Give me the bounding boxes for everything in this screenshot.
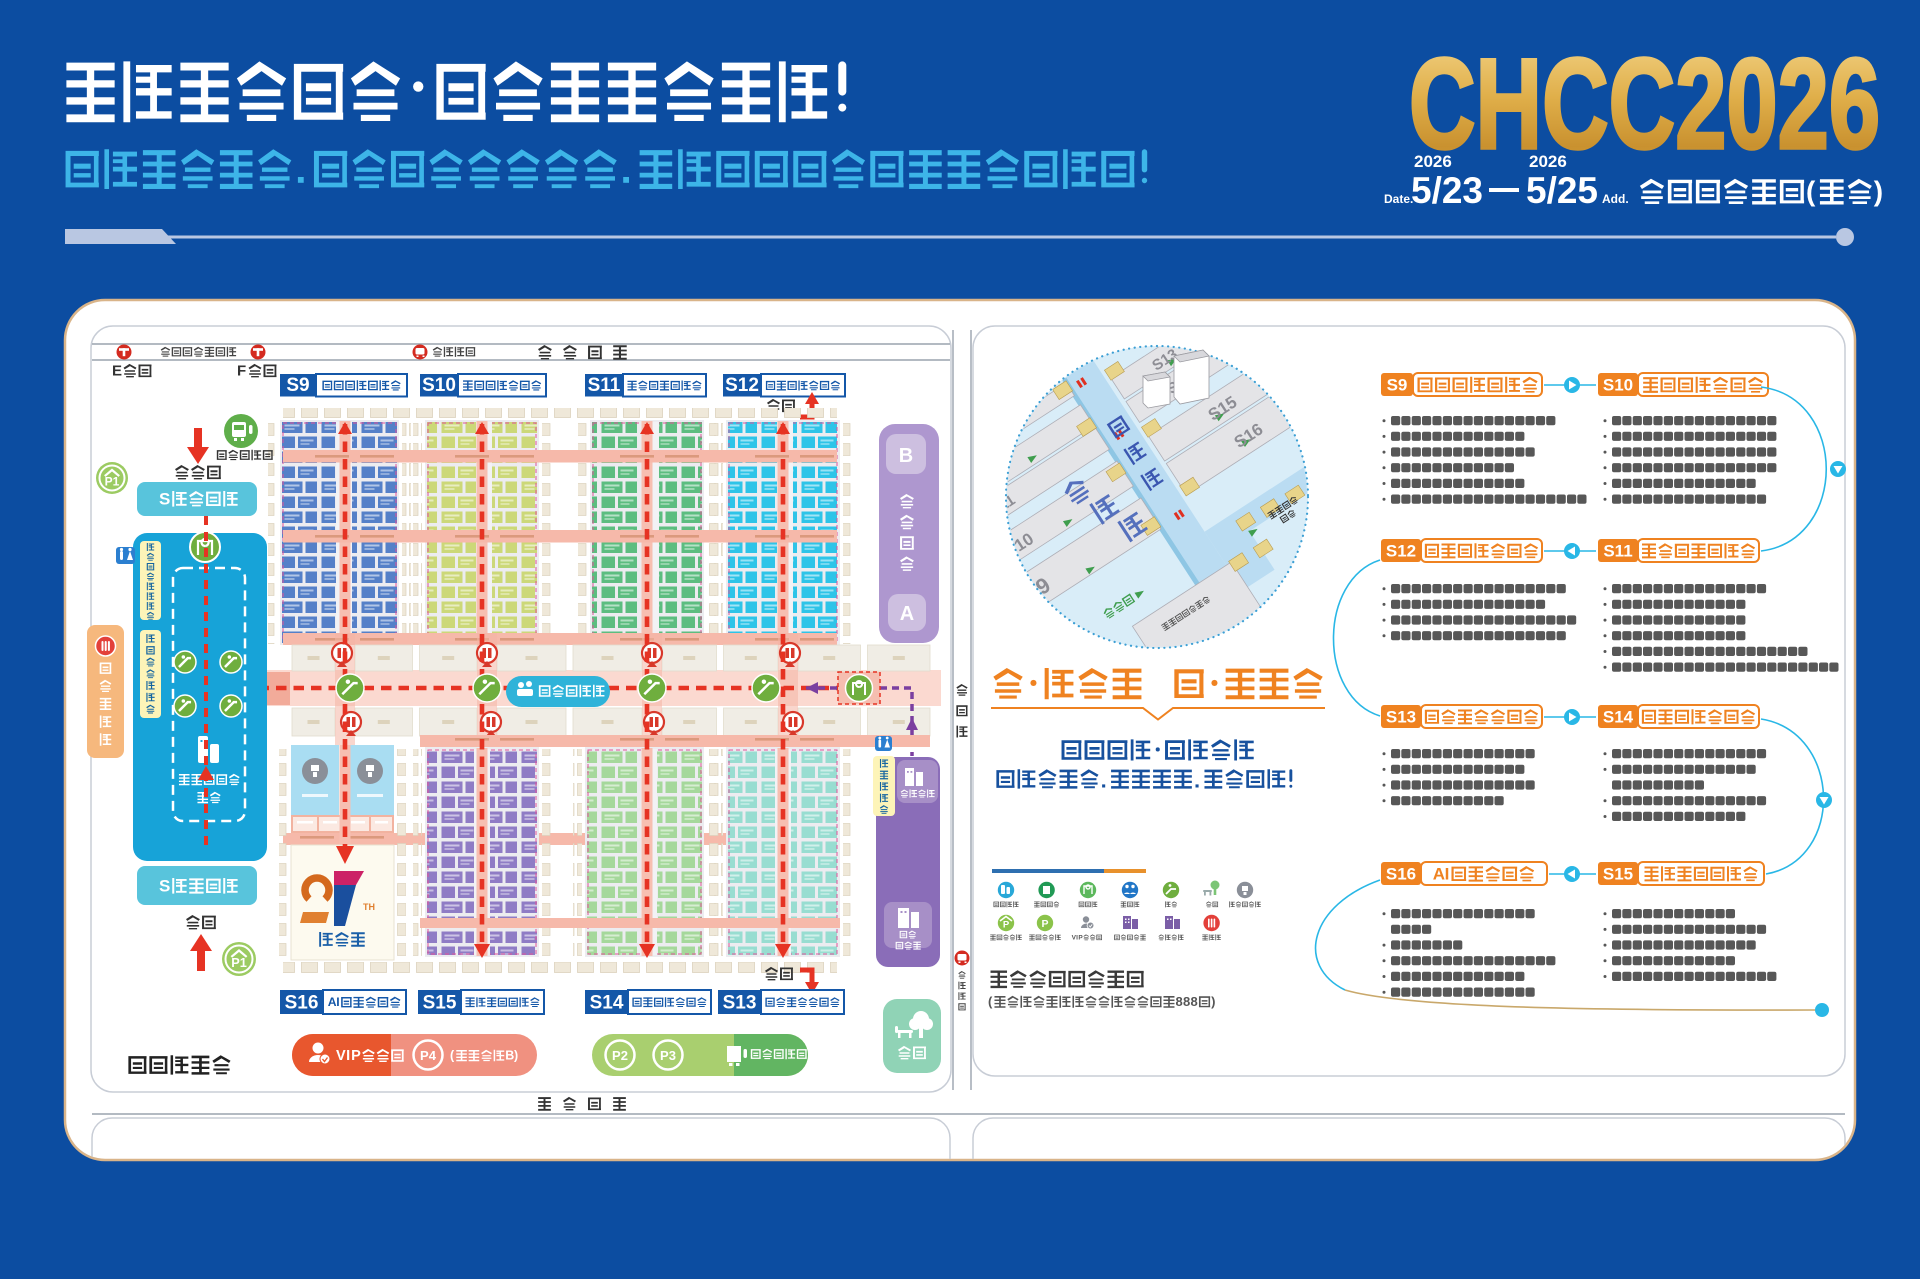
svg-text:P1: P1 (105, 475, 120, 489)
svg-text:P1: P1 (231, 955, 247, 970)
svg-text:P: P (1003, 920, 1010, 931)
svg-text:B: B (899, 445, 913, 467)
svg-text:S10: S10 (1603, 376, 1633, 395)
svg-text:A: A (900, 603, 914, 625)
svg-text:VIP: VIP (336, 1048, 361, 1064)
svg-text:5/23: 5/23 (1411, 170, 1483, 211)
svg-text:S16: S16 (1386, 865, 1416, 884)
svg-text:P3: P3 (660, 1048, 676, 1063)
svg-text:S13: S13 (723, 993, 757, 1014)
svg-text:2026: 2026 (1414, 152, 1452, 171)
svg-text:S15: S15 (423, 993, 457, 1014)
svg-text:E: E (112, 363, 122, 380)
svg-text:AI: AI (1433, 864, 1450, 883)
svg-text:S11: S11 (588, 375, 621, 396)
svg-text:Date.: Date. (1384, 192, 1413, 206)
svg-text:TH: TH (363, 902, 375, 912)
svg-text:5/25: 5/25 (1526, 170, 1598, 211)
svg-text:2026: 2026 (1529, 152, 1567, 171)
svg-text:S12: S12 (725, 375, 759, 396)
svg-text:AI: AI (328, 995, 340, 1009)
svg-text:S9: S9 (286, 375, 309, 396)
svg-text:S16: S16 (285, 993, 319, 1014)
svg-text:P4: P4 (420, 1048, 437, 1063)
svg-text:Add.: Add. (1602, 192, 1629, 206)
svg-text:S13: S13 (1386, 708, 1416, 727)
svg-text:VIP: VIP (1072, 935, 1084, 942)
svg-text:S14: S14 (590, 993, 624, 1014)
svg-text:P2: P2 (612, 1048, 628, 1063)
svg-text:S12: S12 (1386, 542, 1416, 561)
svg-text:S10: S10 (422, 375, 456, 396)
svg-text:S11: S11 (1603, 542, 1632, 561)
svg-text:P: P (1041, 918, 1048, 930)
svg-text:S: S (159, 489, 170, 508)
svg-text:F: F (237, 363, 246, 380)
svg-text:S14: S14 (1603, 708, 1634, 727)
svg-text:S15: S15 (1603, 865, 1633, 884)
svg-text:S9: S9 (1387, 376, 1408, 395)
svg-text:CHCC2026: CHCC2026 (1409, 32, 1880, 175)
svg-text:S: S (159, 876, 170, 895)
